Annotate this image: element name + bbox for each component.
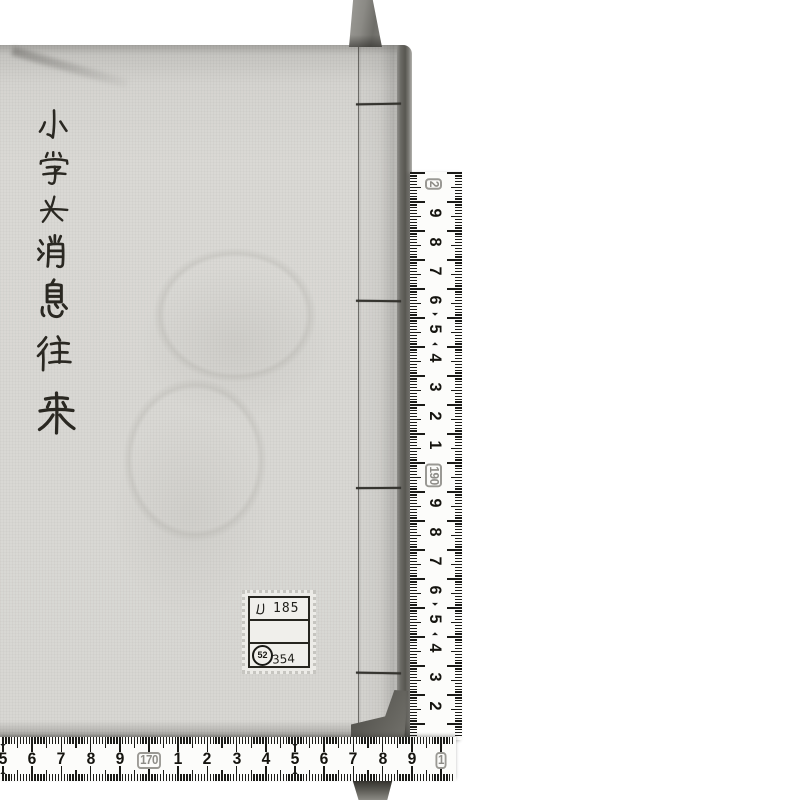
ribbon-bottom-tail xyxy=(352,781,393,800)
ruler-tick xyxy=(251,737,252,748)
ruler-tick xyxy=(447,346,462,348)
ruler-tick xyxy=(455,515,462,516)
ruler-tick xyxy=(29,737,30,744)
ruler-tick xyxy=(309,770,310,781)
ruler-tick xyxy=(410,636,425,638)
ruler-tick xyxy=(99,737,100,744)
ruler-tick xyxy=(437,774,438,781)
ruler-tick xyxy=(455,219,462,220)
ruler-tick xyxy=(410,613,417,614)
ruler-tick xyxy=(356,737,357,744)
ruler-tick xyxy=(215,774,216,781)
ruler-tick xyxy=(451,448,462,449)
ruler-tick xyxy=(227,774,228,781)
ruler-tick xyxy=(410,384,417,385)
ruler-tick xyxy=(410,677,417,678)
ruler-tick xyxy=(455,625,462,626)
ruler-tick xyxy=(128,774,129,781)
ruler-tick xyxy=(140,774,141,781)
ruler-tick xyxy=(385,737,386,744)
ruler-tick xyxy=(20,737,21,744)
ruler-tick xyxy=(410,657,417,658)
ruler-tick xyxy=(410,628,417,629)
ruler-tick xyxy=(410,575,417,576)
ruler-tick xyxy=(410,454,417,455)
ruler-tick xyxy=(379,737,380,744)
ruler-tick xyxy=(451,245,462,246)
ruler-number-177: 7 xyxy=(341,749,367,769)
ruler-tick xyxy=(410,335,417,336)
ruler-tick xyxy=(455,352,462,353)
ruler-tick xyxy=(455,358,462,359)
ruler-tick xyxy=(455,613,462,614)
ruler-tick xyxy=(72,774,73,781)
ruler-tick xyxy=(455,236,462,237)
ruler-tick xyxy=(332,774,333,781)
ruler-tick xyxy=(451,216,462,217)
ruler-tick xyxy=(20,774,21,781)
ruler-tick xyxy=(410,561,417,562)
ruler-tick xyxy=(326,774,327,781)
book-cover: 小学女消息往来 xyxy=(0,45,412,745)
ruler-tick xyxy=(455,497,462,498)
ruler-tick xyxy=(426,737,427,748)
ruler-number-193: 3 xyxy=(425,377,445,398)
ruler-tick xyxy=(11,774,12,781)
ruler-tick xyxy=(455,660,462,661)
ruler-tick xyxy=(410,610,417,611)
ruler-tick xyxy=(455,546,462,547)
ruler-tick xyxy=(204,737,205,744)
ruler-tick xyxy=(81,737,82,744)
ruler-tick xyxy=(370,774,371,781)
ruler-horizontal: 567891701234567891 xyxy=(0,737,456,781)
ruler-tick xyxy=(391,774,392,781)
ruler-tick xyxy=(455,254,462,255)
ruler-tick xyxy=(455,619,462,620)
ribbon-top xyxy=(349,0,383,47)
ruler-tick xyxy=(410,378,417,379)
ruler-tick xyxy=(300,737,301,744)
ruler-tick xyxy=(142,774,143,781)
ruler-tick xyxy=(455,689,462,690)
ruler-tick xyxy=(69,737,70,744)
ruler-tick xyxy=(410,465,417,466)
ruler-tick xyxy=(426,770,427,781)
ruler-tick xyxy=(410,642,417,643)
ruler-tick xyxy=(420,774,421,781)
ruler-tick xyxy=(410,468,417,469)
ruler-number-189: 9 xyxy=(425,493,445,514)
ruler-tick xyxy=(405,737,406,744)
ruler-tick xyxy=(297,737,298,744)
ruler-tick xyxy=(373,737,374,744)
ruler-tick xyxy=(455,712,462,713)
ruler-number-199: 9 xyxy=(425,203,445,224)
ruler-tick xyxy=(116,737,117,744)
ruler-tick xyxy=(160,737,161,744)
ruler-tick xyxy=(447,491,462,493)
ruler-tick xyxy=(259,737,260,744)
ruler-tick xyxy=(410,709,421,710)
ruler-tick xyxy=(410,204,417,205)
ruler-tick xyxy=(410,732,417,733)
ruler-tick xyxy=(455,233,462,234)
ruler-number-167: 7 xyxy=(49,749,75,769)
ruler-tick xyxy=(26,774,27,781)
ruler-tick xyxy=(142,737,143,744)
ruler-tick xyxy=(455,384,462,385)
ruler-tick xyxy=(84,737,85,744)
ruler-tick xyxy=(429,737,430,744)
ruler-tick xyxy=(78,774,79,781)
ruler-tick xyxy=(451,274,462,275)
ruler-tick xyxy=(49,737,50,744)
ruler-tick xyxy=(410,712,417,713)
ruler-tick xyxy=(274,737,275,744)
ruler-tick xyxy=(410,329,417,330)
ruler-tick xyxy=(405,774,406,781)
ruler-tick xyxy=(151,774,152,781)
ruler-tick xyxy=(186,737,187,744)
ruler-tick xyxy=(268,774,269,781)
ruler-tick xyxy=(455,703,462,704)
ruler-tick xyxy=(410,393,417,394)
ruler-tick xyxy=(410,210,417,211)
ruler-tick xyxy=(410,361,421,362)
ruler-tick xyxy=(213,774,214,781)
ruler-tick xyxy=(410,225,417,226)
ruler-tick xyxy=(410,442,417,443)
ruler-tick xyxy=(318,774,319,781)
ruler-tick xyxy=(347,737,348,744)
ruler-tick xyxy=(410,332,421,333)
ruler-tick xyxy=(52,737,53,744)
ruler-tick xyxy=(34,774,35,781)
ruler-tick xyxy=(210,737,211,744)
ruler-tick xyxy=(455,439,462,440)
ruler-number-183: 3 xyxy=(425,667,445,688)
ruler-tick xyxy=(455,399,462,400)
ruler-tick xyxy=(455,590,462,591)
ruler-number-200: 2 xyxy=(425,174,445,195)
ruler-tick xyxy=(452,737,453,744)
ruler-tick xyxy=(455,396,462,397)
ruler-tick xyxy=(410,190,417,191)
ruler-tick xyxy=(455,648,462,649)
ruler-tick xyxy=(291,737,292,744)
ruler-tick xyxy=(5,774,6,781)
ruler-tick xyxy=(172,737,173,744)
ruler-tick xyxy=(455,639,462,640)
ruler-tick xyxy=(388,737,389,744)
ruler-tick xyxy=(410,367,417,368)
ruler-tick xyxy=(455,486,462,487)
ruler-tick xyxy=(410,372,417,373)
ruler-tick xyxy=(218,737,219,744)
ruler-tick xyxy=(443,737,444,744)
ruler-tick xyxy=(455,335,462,336)
ruler-tick xyxy=(410,312,417,313)
ruler-tick xyxy=(410,549,425,551)
ruler-tick xyxy=(410,697,417,698)
ruler-tick xyxy=(410,639,417,640)
ruler-tick xyxy=(75,737,76,748)
ruler-tick xyxy=(410,358,417,359)
ruler-tick xyxy=(410,436,417,437)
ruler-tick xyxy=(410,662,417,663)
ruler-tick xyxy=(410,506,421,507)
ruler-tick xyxy=(198,774,199,781)
ruler-tick xyxy=(447,607,462,609)
ruler-tick xyxy=(455,729,462,730)
ruler-tick xyxy=(410,602,417,603)
ruler-tick xyxy=(341,774,342,781)
ruler-tick xyxy=(410,457,417,458)
ruler-tick xyxy=(455,465,462,466)
ruler-tick xyxy=(166,774,167,781)
title-char-7-rai xyxy=(31,388,81,442)
ruler-tick xyxy=(434,737,435,744)
ruler-number-166: 6 xyxy=(19,749,45,769)
ruler-tick xyxy=(414,774,415,781)
ruler-tick xyxy=(192,737,193,748)
ruler-tick xyxy=(107,737,108,744)
ruler-tick xyxy=(410,459,417,460)
ruler-tick xyxy=(455,277,462,278)
ruler-tick xyxy=(17,770,18,781)
ruler-tick xyxy=(274,774,275,781)
ruler-tick xyxy=(446,774,447,781)
ruler-tick xyxy=(410,320,417,321)
ruler-tick xyxy=(455,631,462,632)
ruler-tick xyxy=(410,401,417,402)
ruler-tick xyxy=(455,207,462,208)
ruler-tick xyxy=(410,341,417,342)
ruler-tick xyxy=(455,538,462,539)
ruler-tick xyxy=(259,774,260,781)
ruler-tick xyxy=(455,523,462,524)
ruler-tick xyxy=(335,737,336,744)
ruler-tick xyxy=(163,770,164,781)
ruler-tick xyxy=(447,404,462,406)
ruler-tick xyxy=(271,737,272,744)
ruler-tick xyxy=(332,737,333,744)
binding-stitch xyxy=(356,487,401,489)
ruler-tick xyxy=(410,198,417,199)
ruler-vertical: 298765432119098765432 xyxy=(410,172,462,740)
ruler-tick xyxy=(455,271,462,272)
ruler-tick xyxy=(410,622,421,623)
ruler-tick xyxy=(271,774,272,781)
ruler-tick xyxy=(455,445,462,446)
ruler-tick xyxy=(58,737,59,744)
ruler-tick xyxy=(239,737,240,744)
ruler-tick xyxy=(350,774,351,781)
ruler-tick xyxy=(455,570,462,571)
ruler-tick xyxy=(410,691,417,692)
ruler-tick xyxy=(410,552,417,553)
ruler-tick xyxy=(399,774,400,781)
ruler-tick xyxy=(455,662,462,663)
ruler-number-173: 3 xyxy=(224,749,250,769)
ruler-tick xyxy=(410,352,417,353)
ruler-tick xyxy=(410,517,417,518)
ruler-tick xyxy=(204,774,205,781)
ruler-tick xyxy=(455,314,462,315)
ruler-tick xyxy=(410,515,417,516)
ruler-tick xyxy=(455,633,462,634)
ruler-tick xyxy=(455,567,462,568)
ruler-tick xyxy=(408,737,409,744)
ruler-tick xyxy=(283,737,284,744)
ruler-tick xyxy=(410,633,417,634)
ruler-tick xyxy=(93,737,94,744)
ruler-tick xyxy=(410,326,417,327)
ruler-tick xyxy=(455,706,462,707)
ruler-tick xyxy=(455,413,462,414)
ruler-tick xyxy=(192,770,193,781)
ruler-tick xyxy=(455,541,462,542)
title-char-6-ou xyxy=(31,334,77,376)
stamp-number: 354 xyxy=(272,651,296,666)
ruler-tick xyxy=(410,396,417,397)
ruler-tick xyxy=(391,737,392,744)
ruler-tick xyxy=(410,268,417,269)
ruler-tick xyxy=(157,774,158,781)
ruler-tick xyxy=(410,413,417,414)
ruler-tick xyxy=(137,737,138,744)
ruler-tick xyxy=(455,581,462,582)
ruler-tick xyxy=(69,774,70,781)
ruler-tick xyxy=(410,723,425,725)
ruler-tick xyxy=(447,723,462,725)
ruler-tick xyxy=(399,737,400,744)
ruler-tick xyxy=(455,494,462,495)
ruler-tick xyxy=(414,737,415,744)
ruler-tick xyxy=(318,737,319,744)
ruler-tick xyxy=(455,430,462,431)
title-char-4-shou xyxy=(31,232,77,274)
ruler-tick xyxy=(410,474,417,475)
ruler-tick xyxy=(455,604,462,605)
ruler-tick xyxy=(455,573,462,574)
ruler-number-185: 5 xyxy=(425,609,445,630)
ruler-tick xyxy=(451,680,462,681)
ruler-tick xyxy=(397,770,398,781)
ruler-tick xyxy=(410,216,421,217)
ruler-tick xyxy=(455,283,462,284)
ruler-tick xyxy=(84,774,85,781)
ruler-tick xyxy=(455,306,462,307)
ruler-tick xyxy=(451,390,462,391)
ruler-tick xyxy=(306,737,307,744)
ruler-tick xyxy=(455,381,462,382)
ruler-tick xyxy=(410,631,417,632)
ruler-tick xyxy=(189,774,190,781)
ruler-number-175: 5 xyxy=(282,749,308,769)
ruler-tick xyxy=(455,668,462,669)
ruler-tick xyxy=(455,422,462,423)
ruler-tick xyxy=(140,737,141,744)
ruler-tick xyxy=(410,726,417,727)
ruler-tick xyxy=(245,774,246,781)
ruler-tick xyxy=(455,227,462,228)
ruler-tick xyxy=(134,737,135,748)
cover-stain xyxy=(120,375,270,545)
cover-crease xyxy=(11,47,129,89)
ruler-tick xyxy=(134,770,135,781)
ruler-tick xyxy=(410,718,417,719)
ruler-tick xyxy=(376,737,377,744)
ruler-tick xyxy=(64,774,65,781)
ruler-tick xyxy=(449,774,450,781)
ruler-tick xyxy=(455,242,462,243)
scan-page: 小学女消息往来 xyxy=(0,0,800,800)
ruler-tick xyxy=(455,184,462,185)
ruler-tick xyxy=(455,654,462,655)
ruler-tick xyxy=(341,737,342,744)
ruler-tick xyxy=(163,737,164,748)
ruler-tick xyxy=(455,294,462,295)
ruler-tick xyxy=(455,312,462,313)
ruler-tick xyxy=(218,774,219,781)
ruler-tick xyxy=(410,181,417,182)
ruler-tick xyxy=(410,433,425,435)
ruler-tick xyxy=(410,248,417,249)
ruler-number-174: 4 xyxy=(253,749,279,769)
ruler-tick xyxy=(370,737,371,744)
ruler-tick xyxy=(429,774,430,781)
ruler-tick xyxy=(455,691,462,692)
ruler-tick xyxy=(455,532,462,533)
ruler-tick xyxy=(410,416,417,417)
ruler-tick xyxy=(110,737,111,744)
ruler-tick xyxy=(452,774,453,781)
ruler-tick xyxy=(410,251,417,252)
ruler-tick xyxy=(297,774,298,781)
ruler-tick xyxy=(367,770,368,781)
ruler-tick xyxy=(455,544,462,545)
ruler-tick xyxy=(43,737,44,744)
ruler-tick xyxy=(224,774,225,781)
ruler-tick xyxy=(230,774,231,781)
ruler-tick xyxy=(105,737,106,748)
ruler-tick xyxy=(410,283,417,284)
ruler-tick xyxy=(359,774,360,781)
ruler-tick xyxy=(451,564,462,565)
ruler-tick xyxy=(455,718,462,719)
ruler-tick xyxy=(455,329,462,330)
ruler-tick xyxy=(410,715,417,716)
ruler-tick xyxy=(277,737,278,744)
ruler-tick xyxy=(455,198,462,199)
ruler-tick xyxy=(277,774,278,781)
ruler-tick xyxy=(447,259,462,261)
ruler-tick xyxy=(410,451,417,452)
ruler-tick xyxy=(78,737,79,744)
ruler-tick xyxy=(455,726,462,727)
ruler-tick xyxy=(248,737,249,744)
label-row-3: 52 354 xyxy=(250,644,308,666)
ruler-tick xyxy=(410,387,417,388)
ruler-tick xyxy=(455,642,462,643)
ruler-tick xyxy=(410,526,417,527)
ruler-tick xyxy=(300,774,301,781)
ruler-tick xyxy=(451,593,462,594)
ruler-tick xyxy=(449,737,450,744)
ruler-tick xyxy=(447,636,462,638)
